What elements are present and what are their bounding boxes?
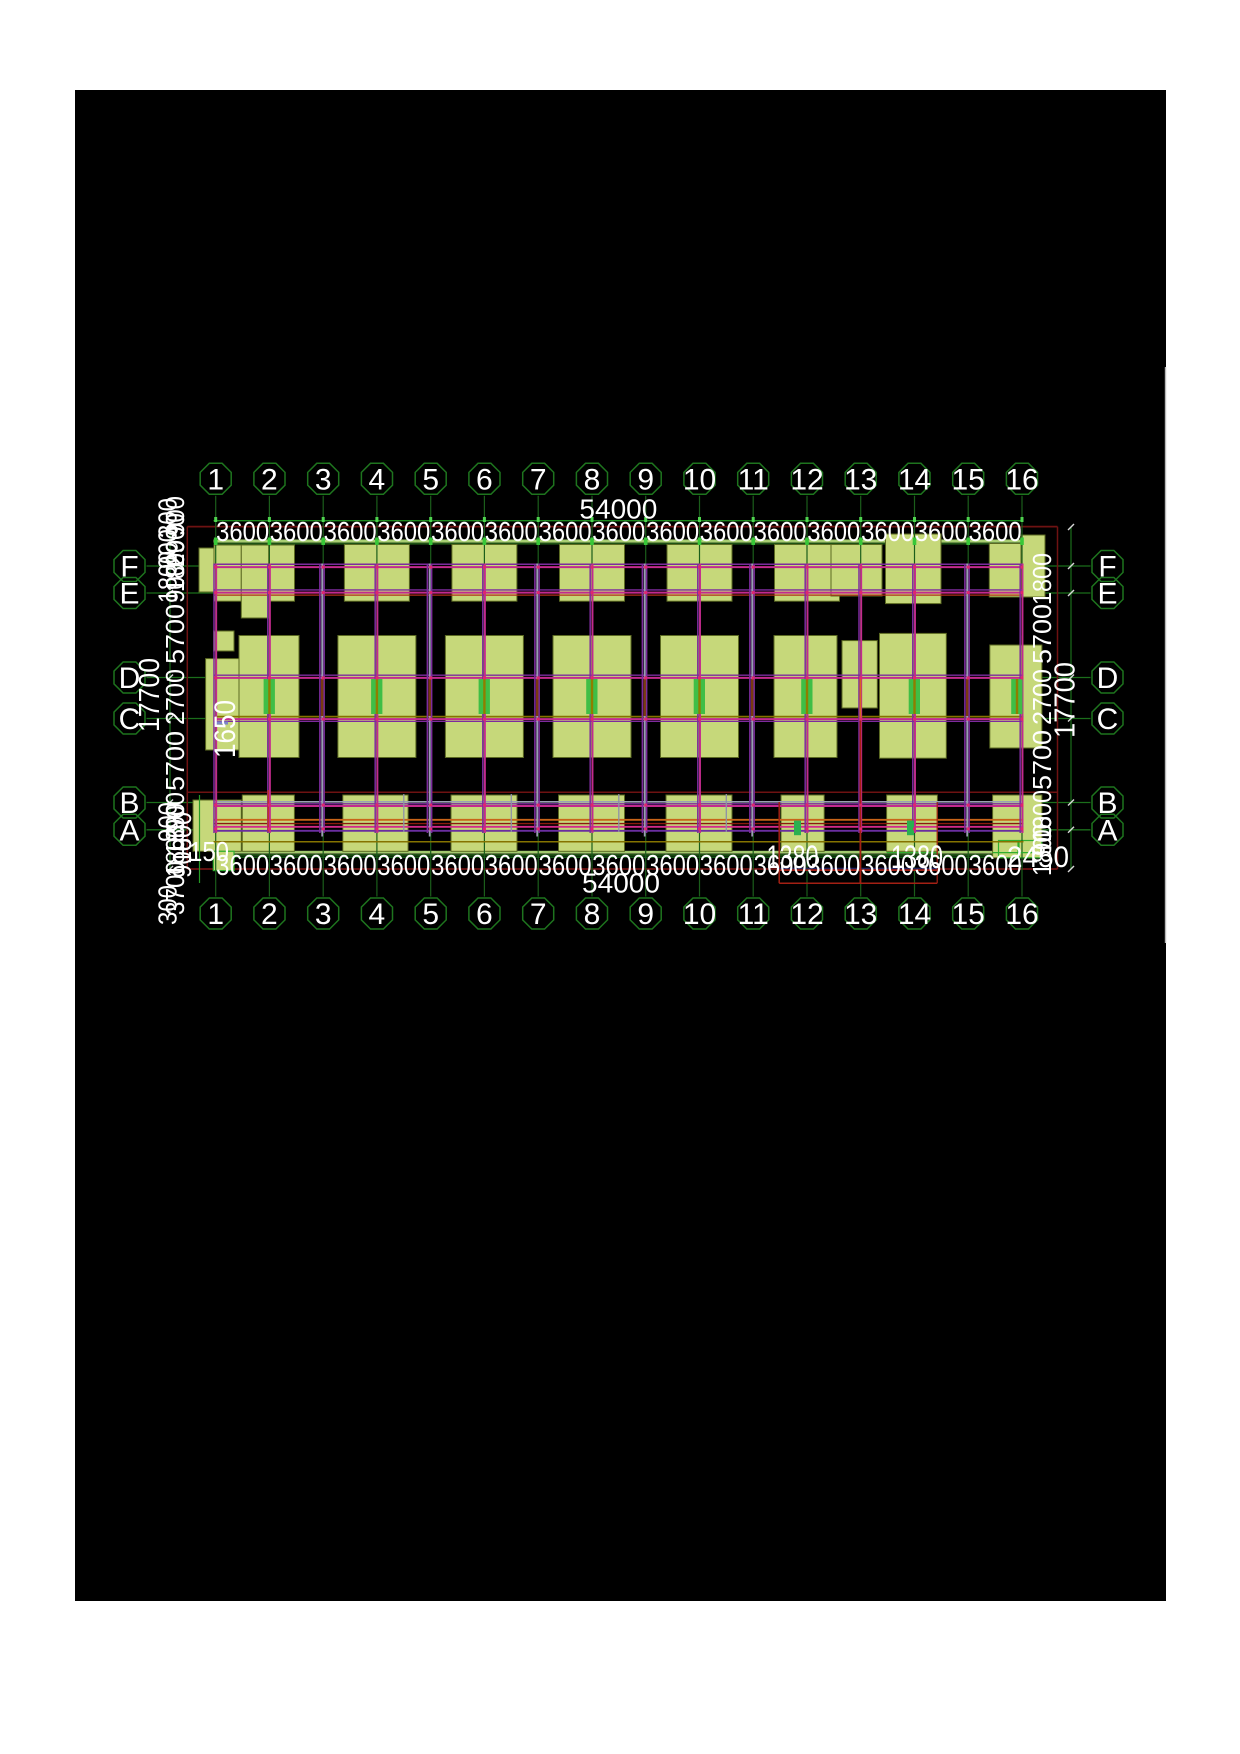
svg-text:3600: 3600 <box>754 516 807 547</box>
svg-text:5700: 5700 <box>160 731 190 791</box>
svg-text:12: 12 <box>790 463 823 496</box>
svg-text:3600: 3600 <box>270 516 323 547</box>
svg-text:10: 10 <box>683 463 716 496</box>
svg-text:8: 8 <box>584 898 601 931</box>
svg-text:8: 8 <box>584 463 601 496</box>
svg-text:D: D <box>1097 662 1119 695</box>
svg-text:9: 9 <box>637 898 654 931</box>
svg-text:3600: 3600 <box>485 516 538 547</box>
svg-text:5: 5 <box>422 898 439 931</box>
svg-text:3: 3 <box>315 898 332 931</box>
svg-text:3600: 3600 <box>216 516 269 547</box>
svg-text:15: 15 <box>952 463 985 496</box>
svg-text:2: 2 <box>261 898 278 931</box>
svg-text:2: 2 <box>261 463 278 496</box>
svg-text:4: 4 <box>369 898 386 931</box>
svg-text:3600: 3600 <box>646 850 699 882</box>
svg-text:9: 9 <box>637 463 654 496</box>
svg-text:A: A <box>119 814 139 847</box>
svg-text:3600: 3600 <box>700 850 753 882</box>
svg-text:4: 4 <box>369 463 386 496</box>
svg-text:3600: 3600 <box>377 850 430 882</box>
svg-text:1380: 1380 <box>767 839 819 875</box>
svg-text:3600: 3600 <box>539 850 592 882</box>
svg-text:7: 7 <box>530 898 547 931</box>
svg-text:5700: 5700 <box>1027 730 1057 790</box>
svg-text:5: 5 <box>422 463 439 496</box>
svg-text:3600: 3600 <box>592 850 645 882</box>
svg-text:3600: 3600 <box>539 516 592 547</box>
svg-text:14: 14 <box>898 898 931 931</box>
svg-text:1650: 1650 <box>209 700 242 758</box>
svg-text:1: 1 <box>207 463 224 496</box>
svg-text:1380: 1380 <box>891 839 943 875</box>
svg-text:3600: 3600 <box>377 516 430 547</box>
svg-text:5700: 5700 <box>1027 604 1057 664</box>
svg-text:10: 10 <box>683 898 716 931</box>
svg-text:3600: 3600 <box>431 516 484 547</box>
svg-text:11: 11 <box>738 898 769 931</box>
svg-text:15: 15 <box>952 898 985 931</box>
svg-text:3600: 3600 <box>969 516 1022 547</box>
svg-text:16: 16 <box>1005 463 1038 496</box>
svg-text:3600: 3600 <box>592 516 645 547</box>
svg-text:5700: 5700 <box>160 604 190 664</box>
svg-text:1800: 1800 <box>1027 553 1057 605</box>
svg-text:17700: 17700 <box>134 658 166 732</box>
svg-text:3600: 3600 <box>646 516 699 547</box>
svg-text:11: 11 <box>738 463 769 496</box>
svg-text:E: E <box>119 578 139 611</box>
svg-text:3: 3 <box>315 463 332 496</box>
svg-text:7: 7 <box>530 463 547 496</box>
svg-text:13: 13 <box>844 898 877 931</box>
svg-text:3600: 3600 <box>431 850 484 882</box>
svg-text:17700: 17700 <box>1050 662 1082 738</box>
svg-text:3600: 3600 <box>270 850 323 882</box>
svg-text:16: 16 <box>1005 898 1038 931</box>
svg-text:1800: 1800 <box>1027 824 1057 876</box>
svg-text:1800: 1800 <box>153 551 183 603</box>
svg-text:3600: 3600 <box>485 850 538 882</box>
svg-text:12: 12 <box>790 898 823 931</box>
svg-text:3600: 3600 <box>807 516 860 547</box>
svg-text:3600: 3600 <box>324 850 377 882</box>
svg-text:1: 1 <box>207 898 224 931</box>
svg-text:6: 6 <box>476 463 493 496</box>
svg-text:3600: 3600 <box>700 516 753 547</box>
svg-text:300: 300 <box>153 885 183 925</box>
svg-text:3600: 3600 <box>915 516 968 547</box>
svg-text:14: 14 <box>898 463 931 496</box>
svg-text:C: C <box>1097 703 1119 736</box>
svg-text:13: 13 <box>844 463 877 496</box>
svg-text:3600: 3600 <box>324 516 377 547</box>
svg-text:A: A <box>1097 814 1117 847</box>
svg-text:6: 6 <box>476 898 493 931</box>
svg-text:3600: 3600 <box>861 516 914 547</box>
svg-text:E: E <box>1097 578 1117 611</box>
